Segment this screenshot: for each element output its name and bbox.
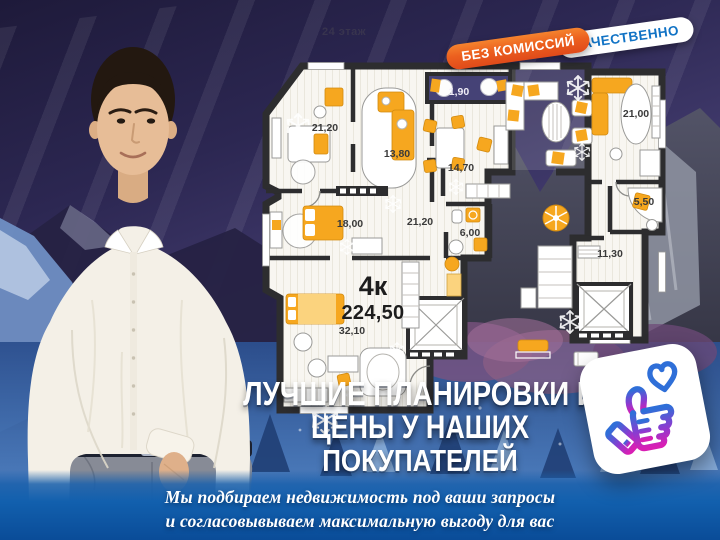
plan-summary: 4к 224,50 (336, 273, 410, 323)
ad-poster: 21,2013,8014,701,9018,0021,206,0032,1021… (0, 0, 720, 540)
apartment-total-area: 224,50 (336, 303, 410, 323)
loggia (427, 74, 510, 102)
apartment-type-label: 4к (336, 273, 410, 300)
footer-strip: Мы подбираем недвижимость под ваши запро… (0, 470, 720, 540)
like-card (576, 340, 714, 478)
floor-note: 24 этаж (322, 26, 366, 38)
footer-line-1: Мы подбираем недвижимость под ваши запро… (0, 487, 720, 508)
heart-icon (648, 363, 677, 392)
stairwell (575, 284, 633, 340)
thumbs-up-icon (589, 353, 702, 466)
footer-line-2: и согласовывываем максимальную выгоду дл… (0, 511, 720, 532)
